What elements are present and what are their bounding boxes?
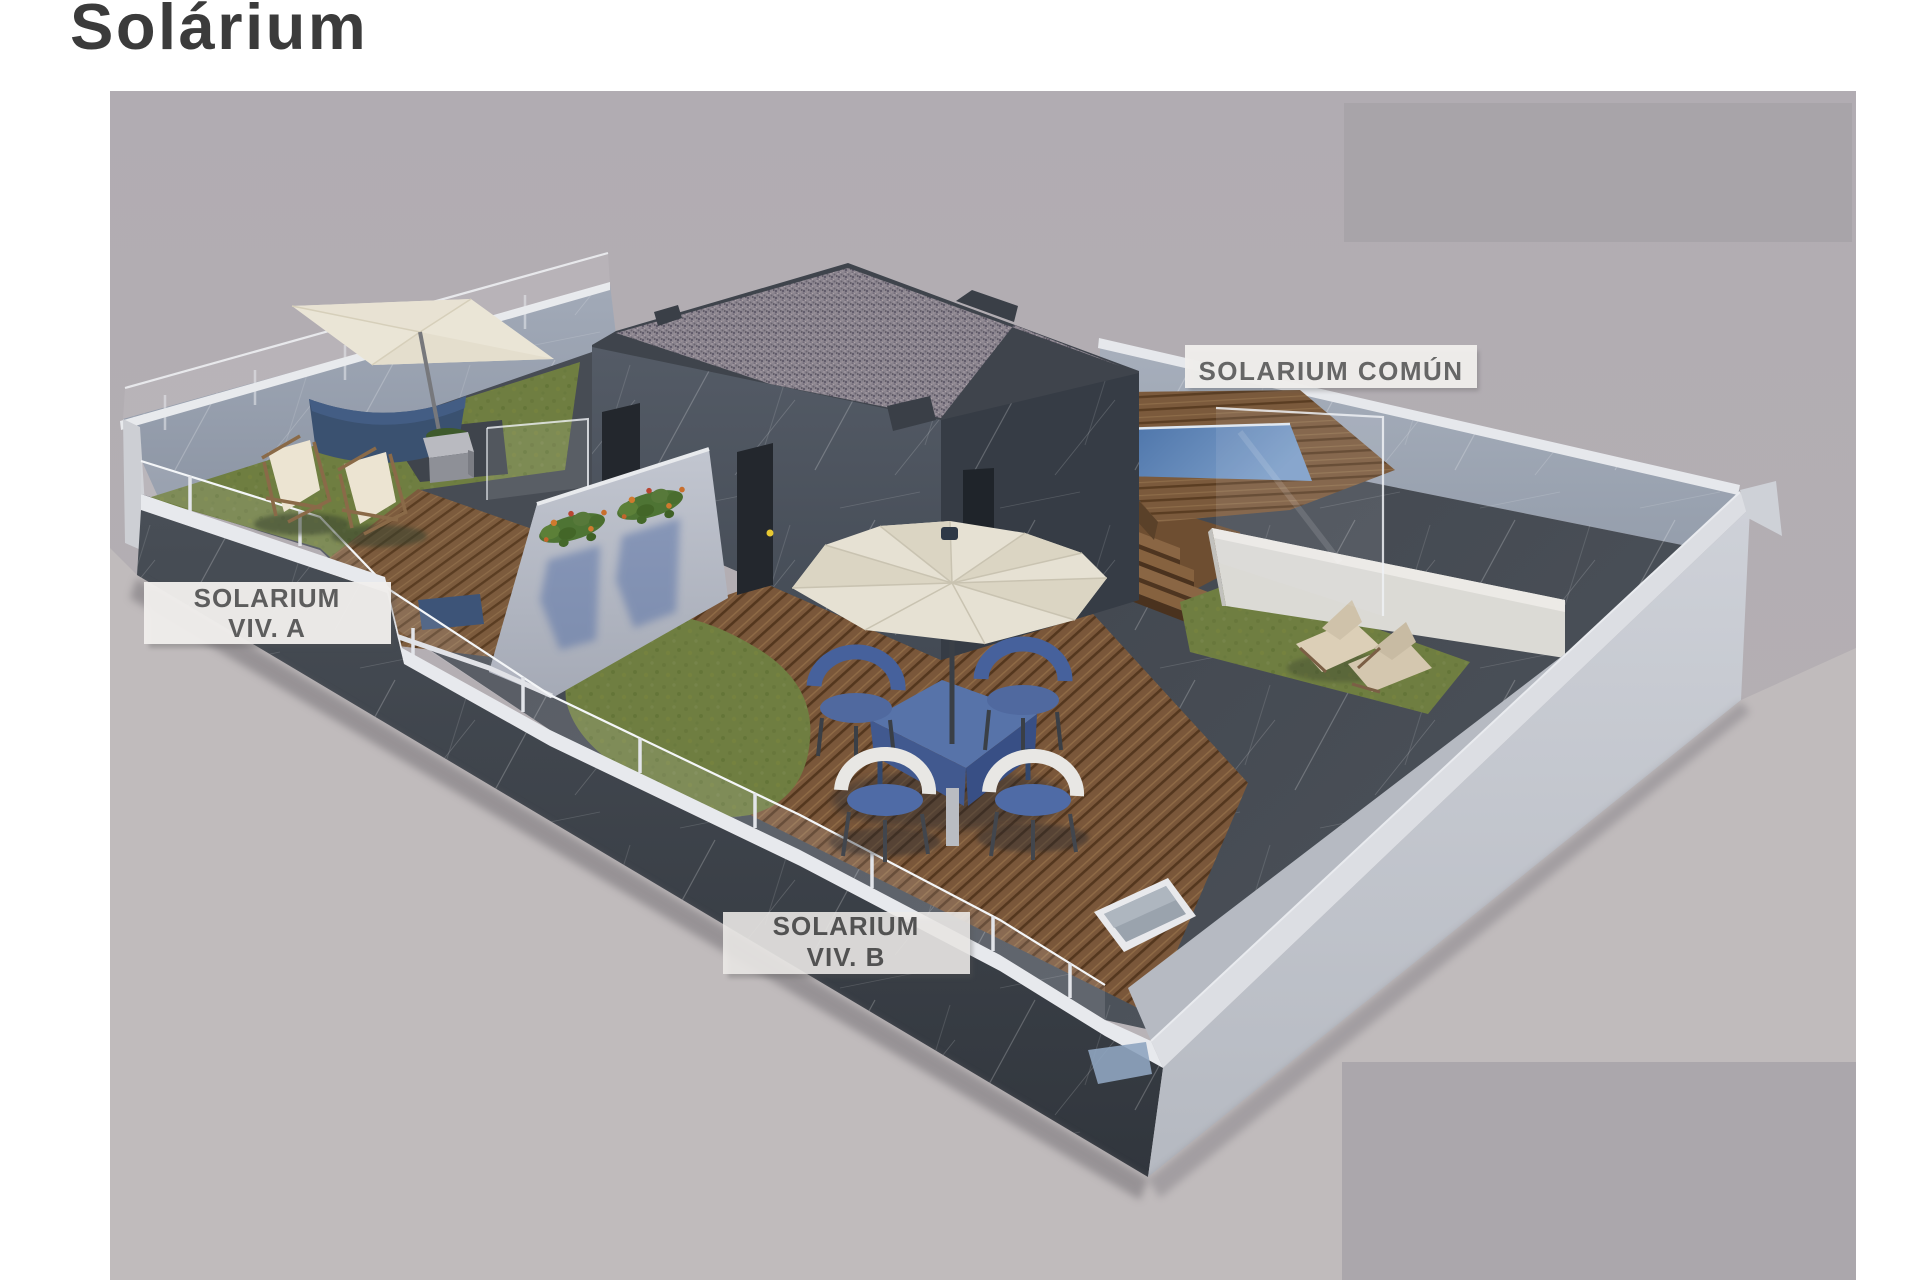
- svg-text:SOLARIUM COMÚN: SOLARIUM COMÚN: [1198, 356, 1463, 386]
- svg-text:SOLARIUM: SOLARIUM: [773, 911, 920, 941]
- svg-text:SOLARIUM: SOLARIUM: [194, 583, 341, 613]
- svg-text:VIV. A: VIV. A: [228, 613, 306, 643]
- svg-text:VIV. B: VIV. B: [807, 942, 886, 972]
